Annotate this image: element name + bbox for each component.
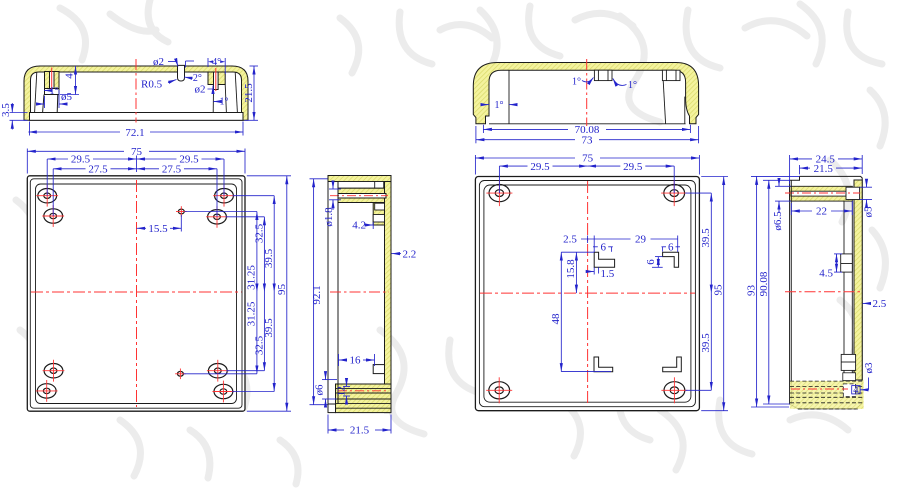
svg-text:ø2: ø2 <box>153 56 164 68</box>
svg-text:27.5: 27.5 <box>162 164 182 176</box>
svg-text:1°: 1° <box>220 97 229 108</box>
svg-text:3.5: 3.5 <box>0 103 12 117</box>
svg-text:4°: 4° <box>212 57 221 68</box>
svg-text:48: 48 <box>550 313 562 325</box>
svg-text:ø1.8: ø1.8 <box>323 207 335 227</box>
svg-text:21.5: 21.5 <box>350 425 370 437</box>
svg-text:6: 6 <box>668 242 674 254</box>
svg-text:32.5: 32.5 <box>253 223 265 243</box>
svg-text:ø2: ø2 <box>195 84 206 96</box>
svg-text:-2°: -2° <box>190 73 202 84</box>
svg-text:15.8: 15.8 <box>565 259 577 279</box>
svg-text:4: 4 <box>64 73 76 79</box>
svg-text:1°: 1° <box>50 86 59 97</box>
svg-text:72.1: 72.1 <box>125 127 144 139</box>
svg-text:1°: 1° <box>572 77 581 88</box>
svg-text:2.2: 2.2 <box>403 248 417 260</box>
svg-text:ø3: ø3 <box>863 362 875 374</box>
svg-text:29.5: 29.5 <box>179 154 199 166</box>
svg-text:92.1: 92.1 <box>311 285 323 304</box>
svg-text:90.08: 90.08 <box>758 271 770 296</box>
svg-text:ø5: ø5 <box>863 206 875 218</box>
svg-text:16: 16 <box>350 355 362 367</box>
svg-text:15.5: 15.5 <box>148 223 168 235</box>
svg-text:39.5: 39.5 <box>263 248 275 268</box>
svg-text:27.5: 27.5 <box>88 164 108 176</box>
svg-text:95: 95 <box>713 284 725 296</box>
svg-text:39.5: 39.5 <box>700 228 712 248</box>
svg-text:29.5: 29.5 <box>530 161 550 173</box>
svg-text:1°: 1° <box>495 100 504 111</box>
svg-text:1°: 1° <box>628 80 637 91</box>
svg-text:R0.5: R0.5 <box>141 79 163 91</box>
svg-text:39.5: 39.5 <box>263 318 275 338</box>
svg-text:31.25: 31.25 <box>246 301 258 326</box>
svg-text:4.2: 4.2 <box>352 220 366 232</box>
svg-text:29: 29 <box>635 234 647 246</box>
svg-text:73: 73 <box>582 134 594 146</box>
svg-text:21.5: 21.5 <box>243 83 255 103</box>
svg-text:29.5: 29.5 <box>623 161 643 173</box>
svg-text:4.5: 4.5 <box>819 268 833 280</box>
svg-text:22: 22 <box>816 206 827 218</box>
svg-text:ø6.5: ø6.5 <box>772 211 784 231</box>
svg-text:39.5: 39.5 <box>700 333 712 353</box>
svg-text:12: 12 <box>337 386 348 396</box>
svg-text:21.5: 21.5 <box>814 163 834 175</box>
svg-text:95: 95 <box>276 284 288 296</box>
svg-text:4: 4 <box>853 384 859 396</box>
svg-text:ø5: ø5 <box>61 91 73 103</box>
svg-text:2.5: 2.5 <box>873 298 887 310</box>
svg-text:1.5: 1.5 <box>601 268 615 280</box>
svg-text:6: 6 <box>645 259 657 265</box>
svg-text:2.5: 2.5 <box>563 234 577 246</box>
svg-text:75: 75 <box>582 153 594 165</box>
svg-text:6: 6 <box>600 242 606 254</box>
svg-text:31.25: 31.25 <box>246 265 258 290</box>
svg-text:93: 93 <box>746 285 758 297</box>
svg-text:ø6: ø6 <box>314 384 326 396</box>
